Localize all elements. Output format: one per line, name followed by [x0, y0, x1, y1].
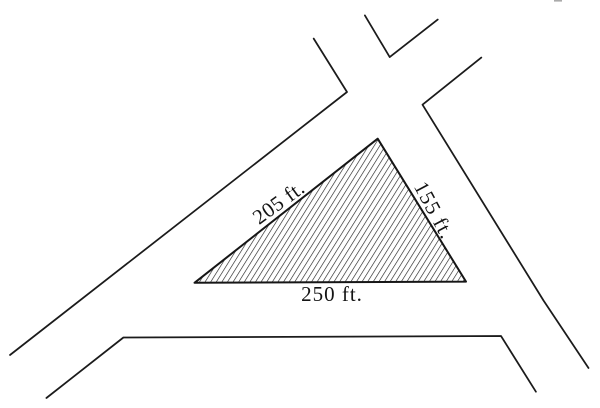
svg-text:250 ft.: 250 ft.: [301, 282, 363, 306]
